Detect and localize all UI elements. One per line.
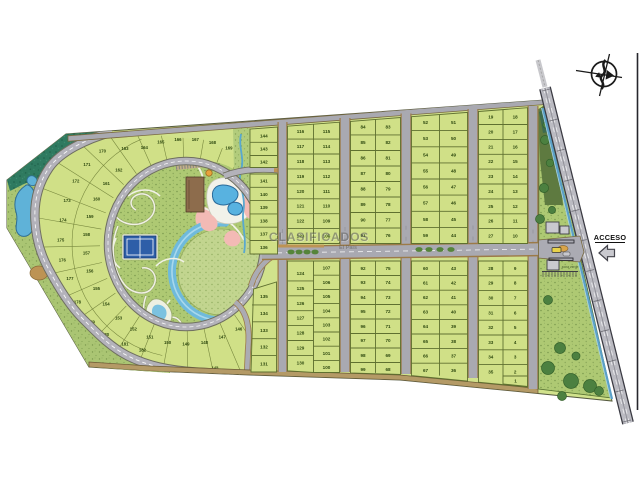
svg-text:63: 63 xyxy=(423,310,429,315)
svg-text:83: 83 xyxy=(385,125,391,130)
svg-text:163: 163 xyxy=(121,146,129,151)
svg-text:88: 88 xyxy=(360,187,366,192)
svg-text:22: 22 xyxy=(488,159,494,164)
svg-text:161: 161 xyxy=(103,181,111,186)
svg-text:171: 171 xyxy=(83,162,91,167)
svg-text:159: 159 xyxy=(86,214,94,219)
svg-text:177: 177 xyxy=(66,276,74,281)
svg-text:156: 156 xyxy=(86,269,94,274)
svg-text:33: 33 xyxy=(488,340,494,345)
svg-text:115: 115 xyxy=(323,129,331,134)
svg-text:46: 46 xyxy=(451,201,457,206)
svg-text:118: 118 xyxy=(297,159,305,164)
svg-text:45: 45 xyxy=(451,217,457,222)
svg-text:84: 84 xyxy=(360,125,366,130)
svg-text:172: 172 xyxy=(72,178,80,183)
svg-text:50: 50 xyxy=(451,136,457,141)
svg-text:135: 135 xyxy=(260,294,268,299)
svg-text:167: 167 xyxy=(192,137,200,142)
svg-text:98: 98 xyxy=(360,353,366,358)
svg-text:165: 165 xyxy=(157,140,165,145)
svg-text:ACCESO: ACCESO xyxy=(594,233,627,242)
svg-text:113: 113 xyxy=(323,159,331,164)
svg-text:168: 168 xyxy=(209,140,217,145)
svg-text:80: 80 xyxy=(385,171,391,176)
svg-text:9: 9 xyxy=(514,266,517,271)
svg-text:158: 158 xyxy=(83,232,91,237)
svg-text:zona verde: zona verde xyxy=(562,265,579,269)
svg-text:121: 121 xyxy=(297,204,305,209)
svg-text:29: 29 xyxy=(488,281,494,286)
svg-text:90: 90 xyxy=(360,218,366,223)
svg-text:40: 40 xyxy=(451,310,457,315)
svg-text:57: 57 xyxy=(423,201,429,206)
svg-text:160: 160 xyxy=(93,197,101,202)
svg-text:82: 82 xyxy=(385,140,391,145)
svg-text:26: 26 xyxy=(488,219,494,224)
svg-text:76: 76 xyxy=(385,233,391,238)
svg-text:119: 119 xyxy=(297,174,305,179)
svg-text:68: 68 xyxy=(385,367,391,372)
svg-text:166: 166 xyxy=(174,137,182,142)
svg-text:131: 131 xyxy=(260,362,268,367)
svg-text:130: 130 xyxy=(297,360,305,365)
svg-text:144: 144 xyxy=(260,133,268,138)
svg-text:12: 12 xyxy=(513,204,519,209)
svg-text:143: 143 xyxy=(260,147,268,152)
svg-text:42: 42 xyxy=(451,280,457,285)
svg-text:14: 14 xyxy=(513,174,519,179)
svg-text:37: 37 xyxy=(451,353,457,358)
svg-text:23: 23 xyxy=(488,174,494,179)
svg-text:43: 43 xyxy=(451,266,457,271)
svg-text:34: 34 xyxy=(488,355,494,360)
svg-text:169: 169 xyxy=(225,146,233,151)
svg-text:146: 146 xyxy=(235,327,243,332)
svg-text:77: 77 xyxy=(385,218,391,223)
svg-text:51: 51 xyxy=(451,120,457,125)
svg-text:24: 24 xyxy=(488,189,494,194)
svg-text:65: 65 xyxy=(423,339,429,344)
svg-text:150: 150 xyxy=(164,340,172,345)
svg-text:157: 157 xyxy=(83,251,91,256)
svg-text:140: 140 xyxy=(260,192,268,197)
svg-text:111: 111 xyxy=(323,189,331,194)
svg-text:122: 122 xyxy=(297,219,305,224)
svg-text:147: 147 xyxy=(219,335,227,340)
svg-text:99: 99 xyxy=(360,367,366,372)
svg-text:78: 78 xyxy=(385,202,391,207)
svg-text:21: 21 xyxy=(488,144,494,149)
svg-text:64: 64 xyxy=(423,324,429,329)
svg-text:124: 124 xyxy=(297,271,305,276)
svg-text:117: 117 xyxy=(297,144,305,149)
svg-text:75: 75 xyxy=(385,266,391,271)
svg-text:72: 72 xyxy=(385,309,391,314)
svg-text:102: 102 xyxy=(323,337,331,342)
svg-text:138: 138 xyxy=(260,218,268,223)
svg-text:92: 92 xyxy=(360,266,366,271)
svg-text:10: 10 xyxy=(513,234,519,239)
svg-text:93: 93 xyxy=(360,280,366,285)
svg-text:6: 6 xyxy=(514,310,517,315)
svg-text:27: 27 xyxy=(488,234,494,239)
svg-text:47: 47 xyxy=(451,185,457,190)
svg-text:109: 109 xyxy=(323,219,331,224)
svg-text:11: 11 xyxy=(513,219,518,224)
svg-text:49: 49 xyxy=(451,152,457,157)
svg-text:89: 89 xyxy=(360,202,366,207)
svg-text:32: 32 xyxy=(488,325,494,330)
svg-text:70: 70 xyxy=(385,338,391,343)
svg-text:74: 74 xyxy=(385,280,391,285)
svg-text:CLASIFICADOS: CLASIFICADOS xyxy=(269,230,369,244)
svg-text:El Pais: El Pais xyxy=(339,245,357,251)
svg-text:67: 67 xyxy=(423,368,429,373)
svg-text:96: 96 xyxy=(360,324,366,329)
svg-text:59: 59 xyxy=(423,233,429,238)
svg-text:154: 154 xyxy=(103,302,111,307)
svg-text:31: 31 xyxy=(488,310,494,315)
svg-text:58: 58 xyxy=(423,217,429,222)
svg-text:38: 38 xyxy=(451,339,457,344)
svg-text:25: 25 xyxy=(488,204,494,209)
svg-text:81: 81 xyxy=(385,156,391,161)
svg-text:54: 54 xyxy=(423,152,429,157)
svg-text:125: 125 xyxy=(297,286,305,291)
svg-text:134: 134 xyxy=(260,311,268,316)
svg-text:181: 181 xyxy=(121,341,129,346)
svg-text:69: 69 xyxy=(385,353,391,358)
svg-text:30: 30 xyxy=(488,296,494,301)
svg-text:94: 94 xyxy=(360,295,366,300)
svg-text:153: 153 xyxy=(115,315,123,320)
svg-text:164: 164 xyxy=(141,145,149,150)
svg-text:120: 120 xyxy=(297,189,305,194)
svg-text:105: 105 xyxy=(323,294,331,299)
svg-text:56: 56 xyxy=(423,185,429,190)
svg-text:95: 95 xyxy=(360,309,366,314)
svg-text:1: 1 xyxy=(514,379,517,384)
svg-text:41: 41 xyxy=(451,295,457,300)
svg-text:137: 137 xyxy=(260,232,268,237)
svg-text:101: 101 xyxy=(323,351,331,356)
svg-text:97: 97 xyxy=(360,338,366,343)
svg-text:5: 5 xyxy=(514,325,517,330)
svg-text:18: 18 xyxy=(513,115,519,120)
svg-text:79: 79 xyxy=(385,187,391,192)
svg-text:162: 162 xyxy=(115,167,123,172)
svg-text:60: 60 xyxy=(423,266,429,271)
svg-text:20: 20 xyxy=(488,129,494,134)
svg-text:149: 149 xyxy=(182,342,190,347)
svg-text:139: 139 xyxy=(260,205,268,210)
svg-text:110: 110 xyxy=(323,204,331,209)
svg-text:107: 107 xyxy=(323,266,331,271)
svg-text:152: 152 xyxy=(130,327,138,332)
svg-text:53: 53 xyxy=(423,136,429,141)
svg-text:141: 141 xyxy=(260,179,268,184)
svg-text:86: 86 xyxy=(360,156,366,161)
svg-text:73: 73 xyxy=(385,295,391,300)
svg-text:126: 126 xyxy=(297,301,305,306)
svg-text:116: 116 xyxy=(297,129,305,134)
svg-text:175: 175 xyxy=(57,237,65,242)
svg-text:35: 35 xyxy=(488,370,494,375)
svg-text:151: 151 xyxy=(146,335,154,340)
svg-text:61: 61 xyxy=(423,280,429,285)
svg-text:44: 44 xyxy=(451,233,457,238)
svg-text:3: 3 xyxy=(514,355,517,360)
svg-text:16: 16 xyxy=(513,144,519,149)
svg-text:17: 17 xyxy=(513,129,519,134)
svg-text:112: 112 xyxy=(323,174,331,179)
svg-text:128: 128 xyxy=(297,331,305,336)
svg-text:173: 173 xyxy=(64,198,72,203)
svg-text:2: 2 xyxy=(514,370,517,375)
svg-text:182: 182 xyxy=(139,348,147,353)
svg-text:133: 133 xyxy=(260,328,268,333)
svg-text:71: 71 xyxy=(385,324,391,329)
svg-text:15: 15 xyxy=(513,159,519,164)
svg-text:52: 52 xyxy=(423,120,429,125)
svg-text:87: 87 xyxy=(360,171,366,176)
svg-text:136: 136 xyxy=(260,245,268,250)
svg-text:85: 85 xyxy=(360,140,366,145)
svg-text:100: 100 xyxy=(323,365,331,370)
svg-text:106: 106 xyxy=(323,280,331,285)
svg-text:127: 127 xyxy=(297,316,305,321)
svg-text:7: 7 xyxy=(514,296,517,301)
svg-text:13: 13 xyxy=(513,189,519,194)
svg-text:148: 148 xyxy=(201,340,209,345)
svg-text:55: 55 xyxy=(423,168,429,173)
svg-text:62: 62 xyxy=(423,295,429,300)
svg-text:129: 129 xyxy=(297,346,305,351)
svg-text:8: 8 xyxy=(514,281,517,286)
svg-text:132: 132 xyxy=(260,345,268,350)
svg-text:174: 174 xyxy=(59,218,67,223)
svg-text:66: 66 xyxy=(423,353,429,358)
svg-text:39: 39 xyxy=(451,324,457,329)
svg-text:142: 142 xyxy=(260,160,268,165)
svg-text:155: 155 xyxy=(93,286,101,291)
svg-text:28: 28 xyxy=(488,266,494,271)
svg-text:176: 176 xyxy=(59,258,67,263)
svg-text:104: 104 xyxy=(323,308,331,313)
svg-text:103: 103 xyxy=(323,323,331,328)
svg-text:114: 114 xyxy=(323,144,331,149)
svg-text:170: 170 xyxy=(99,149,107,154)
svg-text:4: 4 xyxy=(514,340,517,345)
svg-text:36: 36 xyxy=(451,368,457,373)
svg-text:48: 48 xyxy=(451,168,457,173)
svg-text:19: 19 xyxy=(488,115,494,120)
